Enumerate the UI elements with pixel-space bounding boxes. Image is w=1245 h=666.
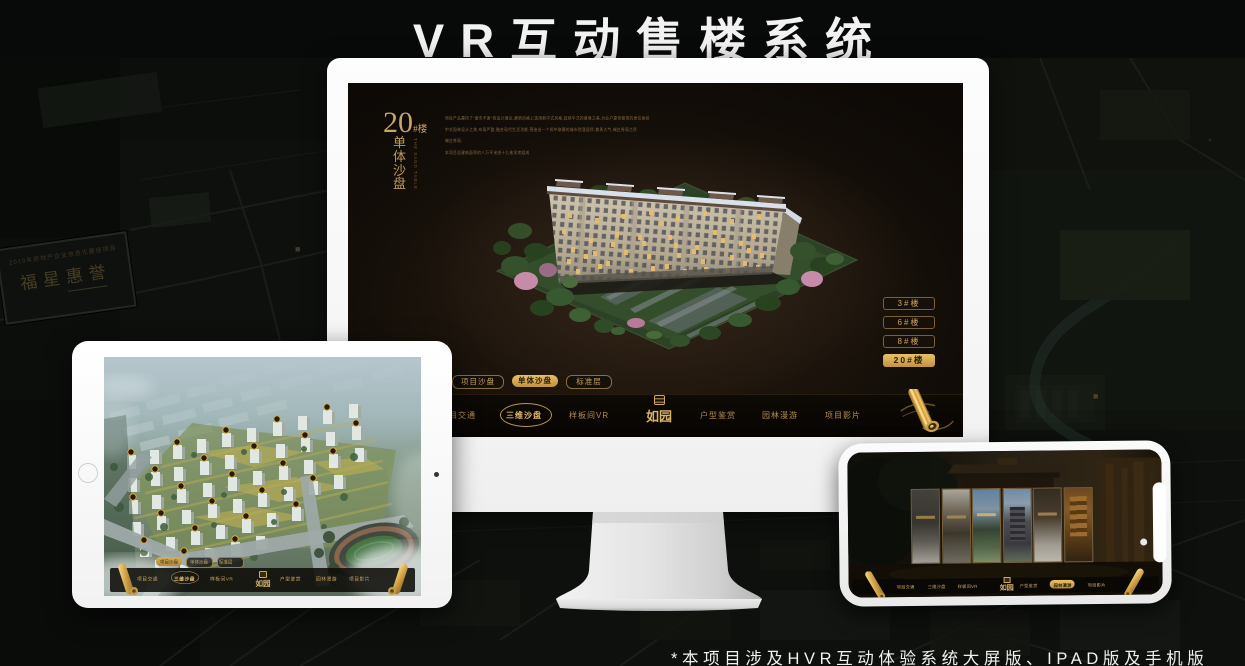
svg-text:■: ■	[295, 244, 300, 254]
svg-text:■: ■	[1093, 391, 1098, 401]
